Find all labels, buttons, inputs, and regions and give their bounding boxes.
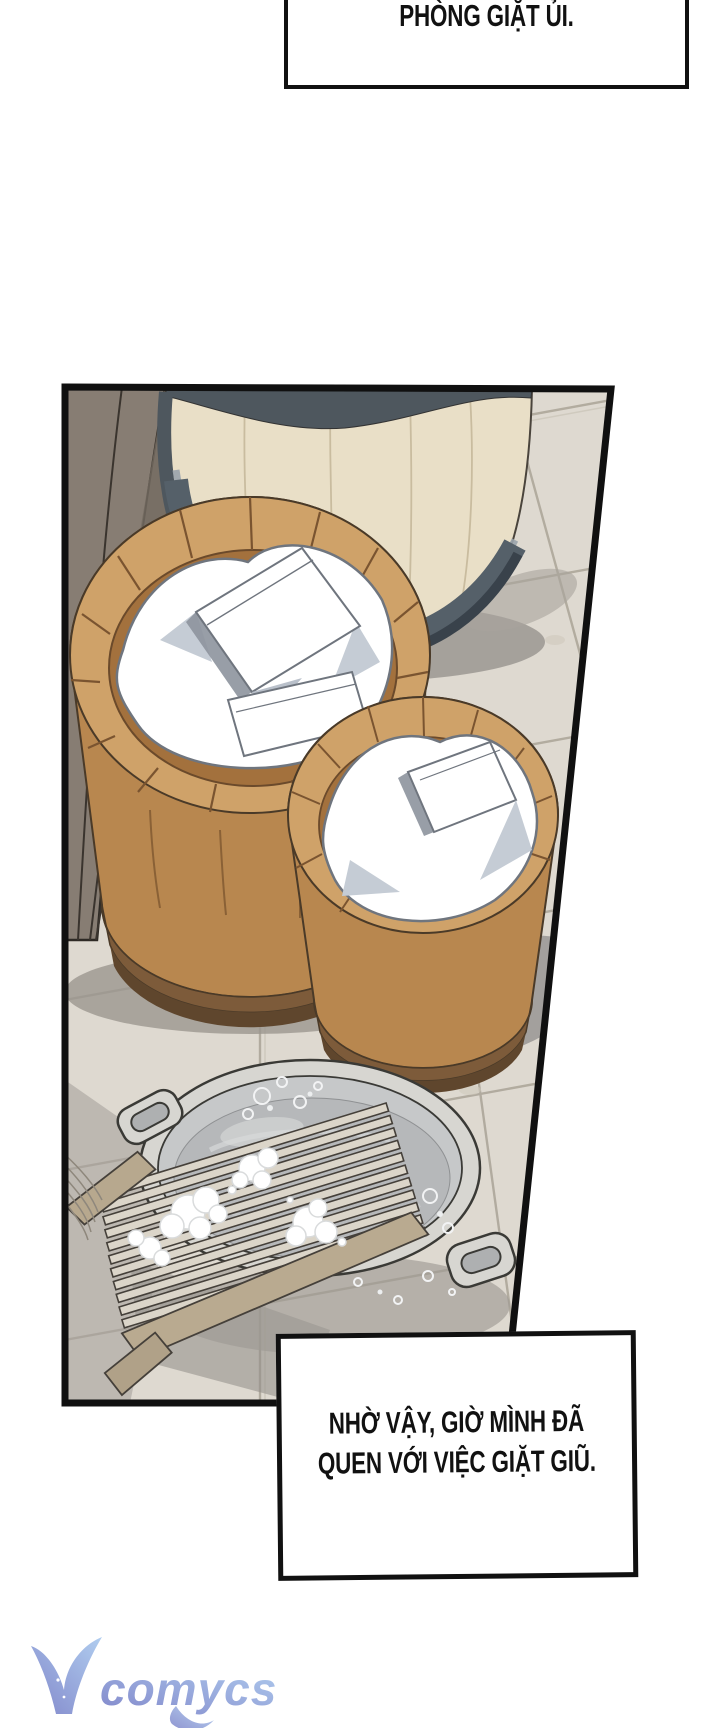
narration-box-bottom: NHỜ VẬY, GIỜ MÌNH ĐÃ QUEN VỚI VIỆC GIẶT …: [276, 1330, 639, 1581]
narration-bottom-line1: NHỜ VẬY, GIỜ MÌNH ĐÃ: [329, 1403, 585, 1439]
watermark-sparkle: [63, 1696, 66, 1699]
narration-text-top: PHÒNG GIẶT ỦI.: [328, 0, 646, 36]
laundry-pile-2: [323, 735, 537, 921]
comic-page: comycs PHÒNG GIẶT ỦI. NHỜ VẬY, GIỜ MÌNH …: [0, 0, 720, 1728]
narration-box-top: PHÒNG GIẶT ỦI.: [284, 0, 689, 89]
laundry-room-scene: [0, 387, 720, 1403]
watermark-v-icon: [31, 1637, 102, 1714]
watermark-logo: comycs: [31, 1637, 277, 1728]
narration-text-bottom: NHỜ VẬY, GIỜ MÌNH ĐÃ QUEN VỚI VIỆC GIẶT …: [317, 1400, 596, 1483]
watermark-sparkle: [56, 1678, 59, 1681]
narration-bottom-line2: QUEN VỚI VIỆC GIẶT GIŨ.: [318, 1443, 596, 1479]
wash-basin-2: [288, 697, 558, 1093]
watermark-text: comycs: [100, 1663, 277, 1715]
